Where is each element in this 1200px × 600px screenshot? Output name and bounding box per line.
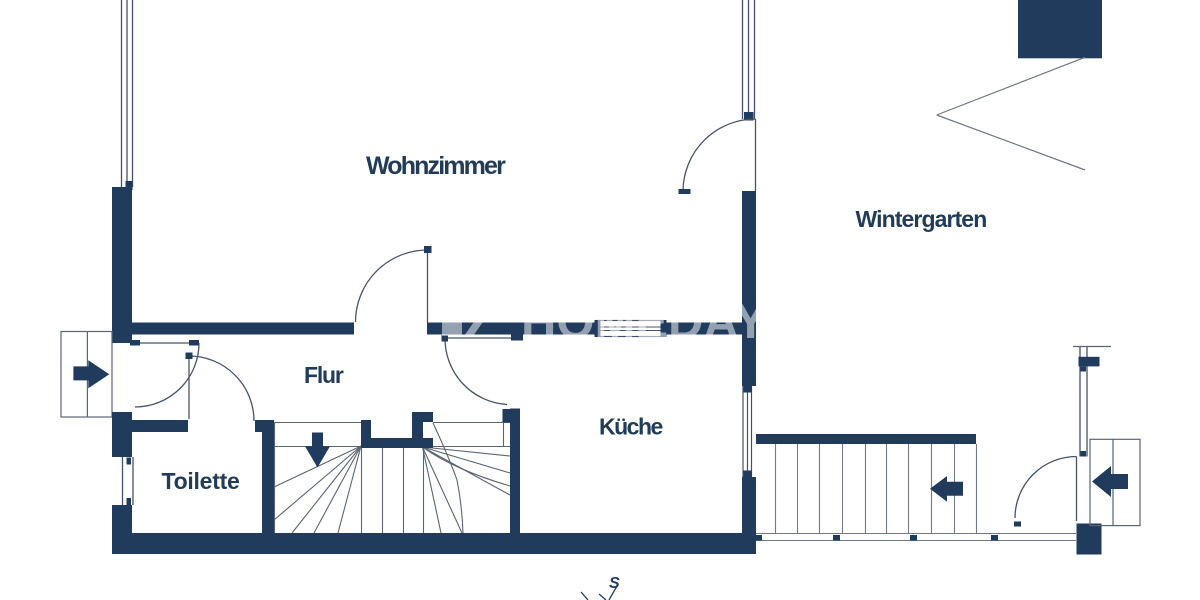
svg-text:Flur: Flur [304,362,344,388]
svg-text:HOMEDAY: HOMEDAY [521,295,767,349]
svg-text:Wohnzimmer: Wohnzimmer [366,152,506,180]
svg-text:Küche: Küche [599,414,663,440]
svg-text:Wintergarten: Wintergarten [856,206,987,232]
svg-text:Toilette: Toilette [162,468,240,494]
